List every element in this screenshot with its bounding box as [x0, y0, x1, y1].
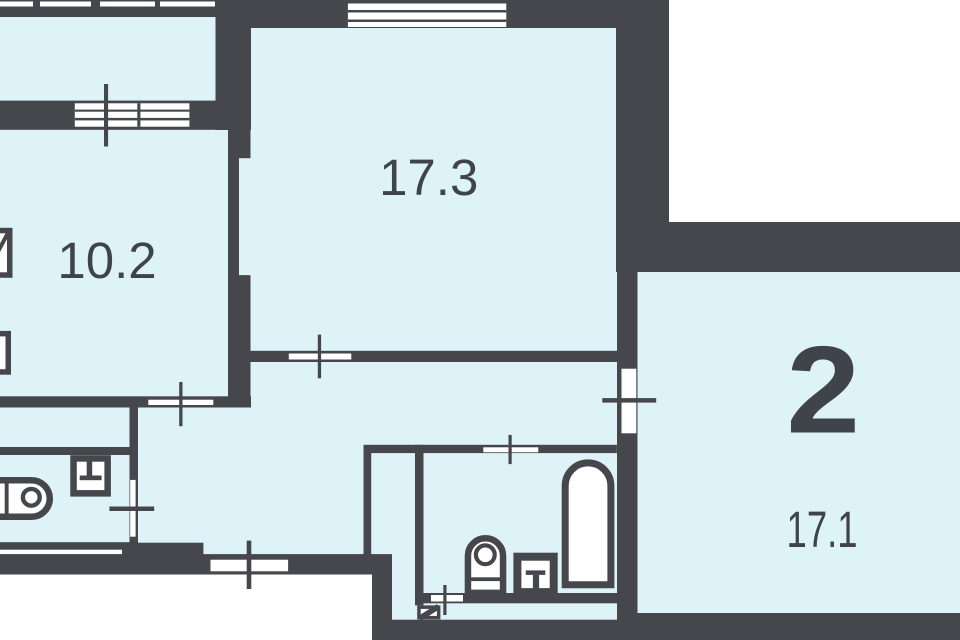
svg-text:17.3: 17.3 [379, 149, 478, 206]
svg-text:2: 2 [786, 321, 860, 459]
svg-text:17.1: 17.1 [787, 502, 858, 558]
svg-text:10.2: 10.2 [57, 232, 156, 289]
